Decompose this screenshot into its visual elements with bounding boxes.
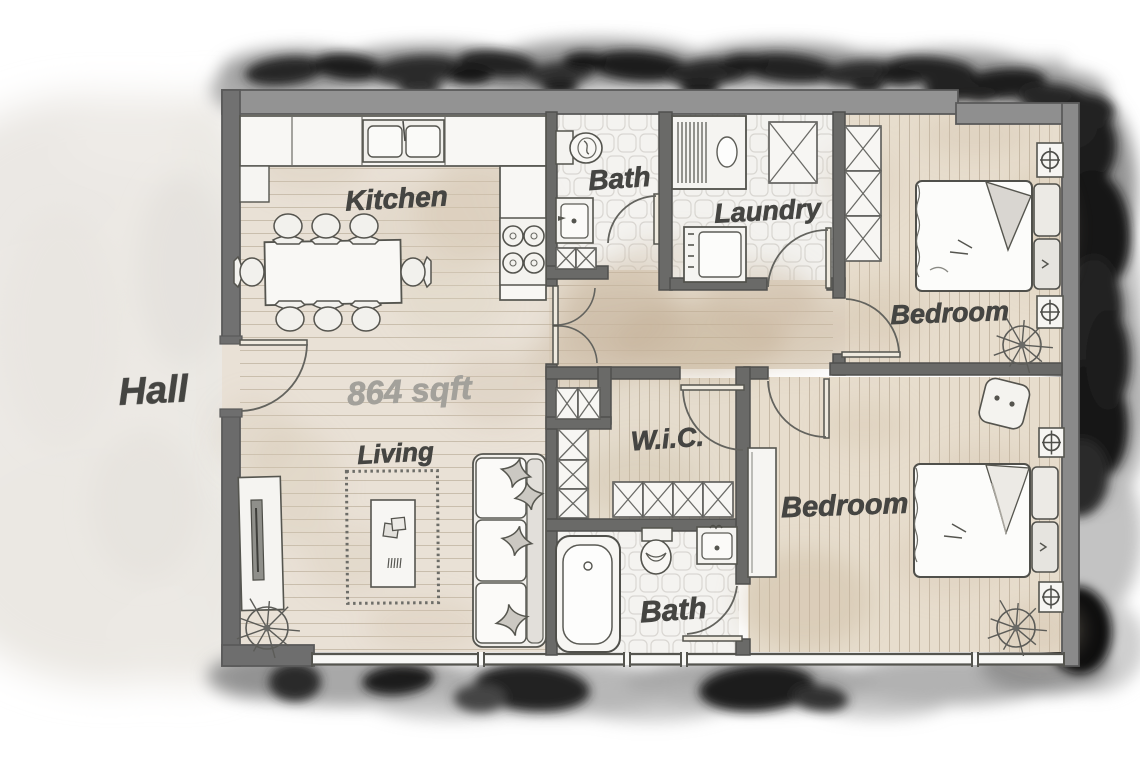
svg-text:W.i.C.: W.i.C. — [630, 422, 705, 457]
svg-text:Living: Living — [357, 436, 435, 470]
svg-text:Laundry: Laundry — [714, 193, 824, 229]
svg-text:Bath: Bath — [587, 161, 651, 196]
svg-text:Kitchen: Kitchen — [344, 180, 448, 216]
svg-text:864 sqft: 864 sqft — [346, 369, 474, 413]
svg-text:Hall: Hall — [117, 368, 190, 414]
svg-text:Bedroom: Bedroom — [781, 488, 909, 524]
svg-text:Bath: Bath — [639, 592, 708, 630]
svg-text:Bedroom: Bedroom — [890, 296, 1009, 330]
